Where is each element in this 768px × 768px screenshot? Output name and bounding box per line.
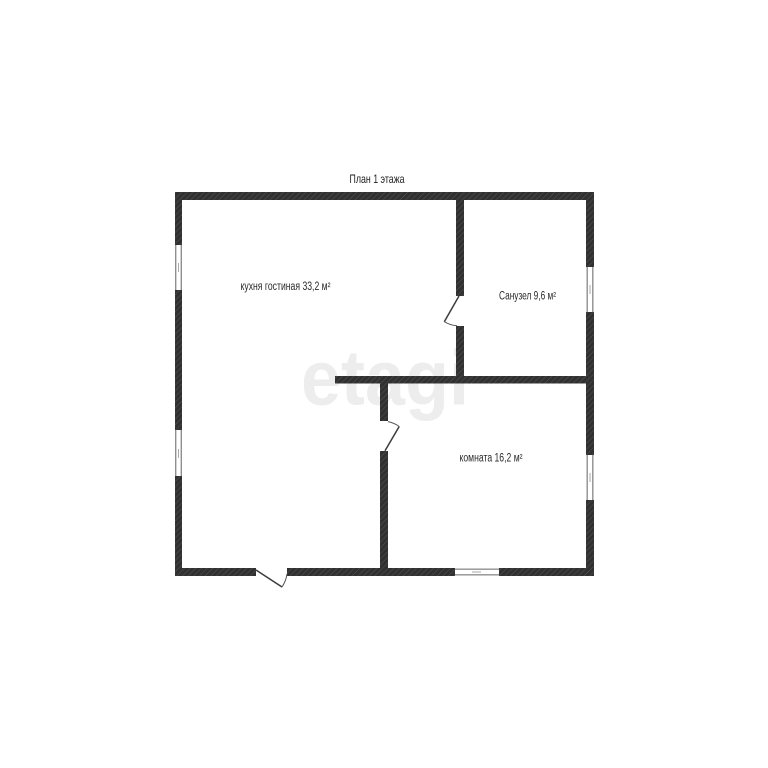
svg-text:Санузел 9,6 м²: Санузел 9,6 м² xyxy=(499,291,556,303)
svg-text:План 1 этажа: План 1 этажа xyxy=(350,172,405,186)
svg-text:комната 16,2 м²: комната 16,2 м² xyxy=(460,453,523,465)
svg-text:кухня гостиная 33,2 м²: кухня гостиная 33,2 м² xyxy=(241,281,331,293)
